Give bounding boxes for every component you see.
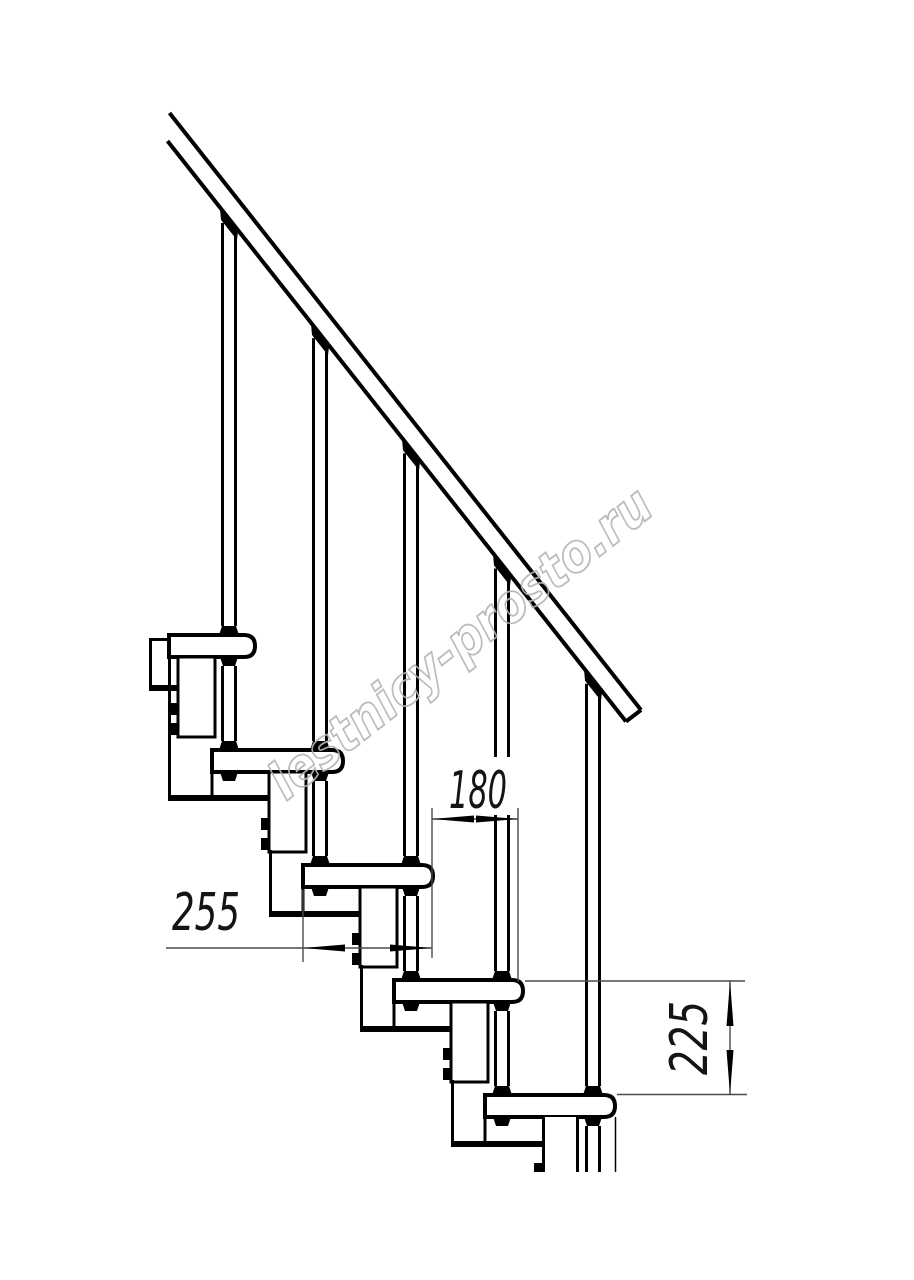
adjustment-bolt [261,838,269,850]
support-column [360,887,397,967]
adjustment-bolt [443,1048,451,1060]
dim-arrow-up [727,981,734,1026]
support-column [544,1117,577,1172]
adjustment-bolt [170,723,178,735]
baluster-bottom-flange [492,971,512,980]
drawing-canvas: 180 255 225 lestnicy-prosto.ru [0,0,914,1280]
adjustment-bolt [352,933,360,945]
dimension-going-label: 180 [449,761,507,821]
adjustment-bolt [534,1163,542,1172]
adjustment-bolt [261,818,269,830]
support-column [451,1002,488,1082]
tread [394,980,523,1002]
baluster-bottom-flange [583,1086,603,1095]
support-column [178,657,215,737]
baluster-bottom-flange [401,856,421,865]
dim-arrow-left [303,945,345,952]
dimension-rise-label: 225 [660,1001,720,1075]
dimension-depth-label: 255 [172,883,240,943]
tread [485,1095,615,1117]
dim-arrow-down [727,1050,734,1095]
staircase-technical-drawing: 180 255 225 lestnicy-prosto.ru [0,0,914,1280]
tread [303,865,433,887]
adjustment-bolt [443,1068,451,1080]
adjustment-bolt [352,953,360,965]
baluster-bottom-flange [219,626,239,635]
adjustment-bolt [170,703,178,715]
tread [169,635,255,657]
